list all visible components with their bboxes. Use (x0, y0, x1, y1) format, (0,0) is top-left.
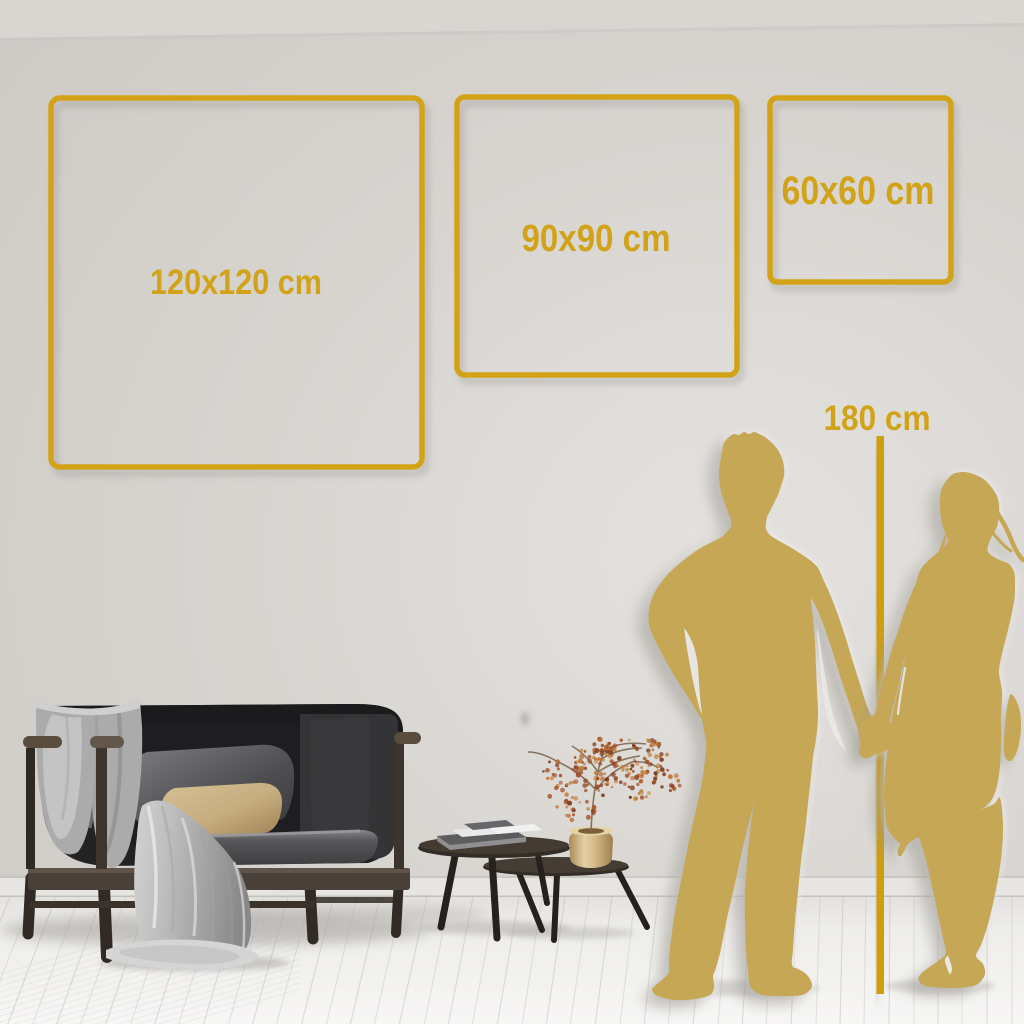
svg-text:90x90 cm: 90x90 cm (522, 218, 671, 260)
svg-text:60x60 cm: 60x60 cm (782, 169, 935, 213)
svg-text:120x120 cm: 120x120 cm (150, 263, 322, 302)
svg-text:180 cm: 180 cm (824, 399, 931, 438)
